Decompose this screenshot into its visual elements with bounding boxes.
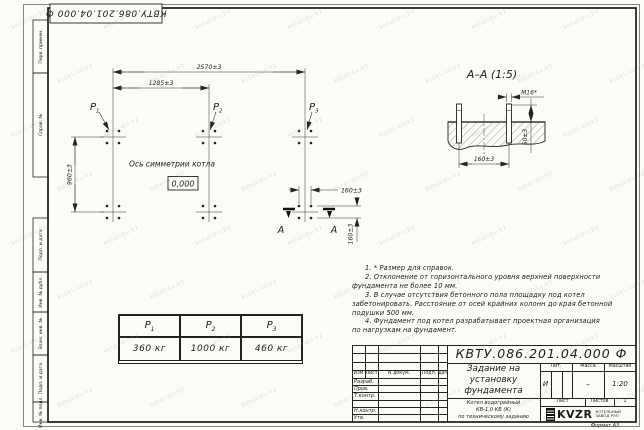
anchor-bolt-dot xyxy=(298,205,301,208)
logo-text: KVZR xyxy=(557,408,592,421)
tb-mass-value: – xyxy=(572,371,604,398)
note-line: фундамента не более 10 мм. xyxy=(352,282,634,291)
title-block-doc-title: Задание на установку фундамента xyxy=(447,364,540,397)
note-line: забетонировать. Расстояние от осей крайн… xyxy=(352,300,634,309)
concrete-pad xyxy=(448,122,545,149)
tb-lit-value: И xyxy=(540,371,551,398)
dim-50-text: 50±3 xyxy=(522,129,529,146)
title-block-code: КВТУ.086.201.04.000 Ф xyxy=(447,345,636,363)
section-view: А–А (1:5) М16* 50±3 xyxy=(448,68,545,168)
doc-title-line: фундамента xyxy=(447,386,540,397)
manufacturer-logo: KVZR КОТЕЛЬНЫЙ ЗАВОД РЭП xyxy=(540,406,636,422)
anchor-bolt-dot xyxy=(202,130,205,133)
axis-symmetry-label: Ось симметрии котла xyxy=(129,160,215,169)
load-table-value-p2: 1000 кг xyxy=(180,337,241,361)
load-point-labels: P1 P2 P3 xyxy=(90,102,319,130)
doc-title-line: установку xyxy=(447,375,540,386)
load-table-value-p1: 360 кг xyxy=(119,337,180,361)
drawing-sheet: Перв. примен. Справ. № Подп. и дата Инв.… xyxy=(0,0,644,430)
margin-label-podp-data-2: Подп. и дата xyxy=(38,363,44,394)
title-block-subtitle: Котел водогрейный КВ-1,0 КБ (К) по техни… xyxy=(447,399,540,423)
margin-label-vzam-inv: Взам. инв. № xyxy=(38,318,44,349)
margin-label-inv-podl: Инв. № подл. xyxy=(38,396,44,428)
anchor-bolt-dot xyxy=(202,217,205,220)
logo-caption-line: ЗАВОД РЭП xyxy=(595,414,621,419)
dim-960-text: 960±3 xyxy=(67,164,74,185)
anchor-bolt-dot xyxy=(118,205,121,208)
anchor-bolt-dot xyxy=(310,142,313,145)
load-p3-label: P3 xyxy=(309,102,319,115)
load-p1-sub: 1 xyxy=(96,109,100,115)
anchor-bolt-dot xyxy=(106,205,109,208)
load-table-value-p3: 460 кг xyxy=(241,337,302,361)
anchor-bolt-dot xyxy=(310,217,313,220)
thread-callout-text: М16* xyxy=(521,90,537,97)
center-lines xyxy=(100,125,318,222)
doc-code-stamp-text: КВТУ.086.201.04.000 Ф xyxy=(45,8,166,18)
doc-title-line: Задание на xyxy=(447,364,540,375)
anchor-bolt-dot xyxy=(298,142,301,145)
plan-view: 2570±3 1285±3 960±3 160±3 xyxy=(67,64,362,244)
technical-notes: 1. * Размер для справок. 2. Отклонение о… xyxy=(352,264,634,335)
tb-col-izm: Изм xyxy=(352,370,365,378)
subtitle-line: КВ-1,0 КБ (К) xyxy=(447,407,540,414)
section-arrow-right xyxy=(327,211,332,218)
tb-scale-value: 1:20 xyxy=(604,371,636,398)
tb-col-data: Дата xyxy=(438,370,447,378)
load-table: P1 P2 P3 360 кг 1000 кг 460 кг xyxy=(118,314,303,364)
format-label: Формат А3 xyxy=(560,423,644,429)
boiler-logo-icon xyxy=(546,408,555,421)
tb-row-razrab: Разраб. xyxy=(354,379,378,386)
anchor-bolt-dot xyxy=(202,205,205,208)
anchor-bolt-dot xyxy=(214,142,217,145)
dim-160-horizontal xyxy=(289,186,338,204)
margin-label-podp-data-1: Подп. и дата xyxy=(38,229,44,260)
dim-1285 xyxy=(113,84,209,125)
tb-col-podp: Подп. xyxy=(420,370,438,378)
margin-label-inv-dubl: Инв. № дубл. xyxy=(38,276,44,307)
note-line: подушки 500 мм. xyxy=(352,309,634,318)
tb-row-nkontr: Н.контр. xyxy=(354,408,378,415)
anchor-bolt-dot xyxy=(106,130,109,133)
tb-sheet-label: Лист xyxy=(540,398,585,406)
anchor-bolt-dot xyxy=(214,205,217,208)
tb-col-ndokum: N докум. xyxy=(378,370,420,378)
logo-caption: КОТЕЛЬНЫЙ ЗАВОД РЭП xyxy=(595,410,621,419)
anchor-bolt-dot xyxy=(118,217,121,220)
dim-160-section-text: 160±3 xyxy=(474,156,494,163)
section-cut-marks: А А xyxy=(277,209,338,236)
section-letter-left: А xyxy=(277,225,285,236)
dim-160-horizontal-text: 160±3 xyxy=(341,187,362,194)
margin-label-perv-primen: Перв. примен. xyxy=(38,29,44,64)
tb-scale-header: Масштаб xyxy=(604,363,636,371)
anchor-bolt-dot xyxy=(202,142,205,145)
dim-960 xyxy=(71,137,104,212)
load-p3-sub: 3 xyxy=(315,109,319,115)
load-table-header-p3: P3 xyxy=(241,315,302,337)
tb-row-prov: Пров. xyxy=(354,386,378,393)
anchor-bolt-dot xyxy=(310,205,313,208)
load-p2-sub: 2 xyxy=(219,109,223,115)
dim-160-vertical-text: 160±3 xyxy=(348,223,355,244)
load-p1-label: P1 xyxy=(90,102,100,115)
load-p2-label: P2 xyxy=(213,102,223,115)
tb-sheets-label: Листов xyxy=(585,398,614,406)
tb-row-utv: Утв. xyxy=(354,415,378,422)
anchor-bolt-dot xyxy=(310,130,313,133)
anchor-bolt-dot xyxy=(106,217,109,220)
load-table-header-p1: P1 xyxy=(119,315,180,337)
tb-col-list: Лист xyxy=(365,370,378,378)
margin-labels: Перв. примен. Справ. № Подп. и дата Инв.… xyxy=(38,29,44,428)
anchor-bolt-dot xyxy=(214,217,217,220)
subtitle-line: Котел водогрейный xyxy=(447,400,540,407)
note-line: по нагрузкам на фундамент. xyxy=(352,326,634,335)
note-line: 1. * Размер для справок. xyxy=(352,264,634,273)
elevation-mark: 0,000 xyxy=(168,177,198,191)
section-letter-right: А xyxy=(330,225,338,236)
anchor-bolt-dot xyxy=(118,142,121,145)
dim-2570-text: 2570±3 xyxy=(197,64,222,71)
doc-code-stamp: КВТУ.086.201.04.000 Ф xyxy=(45,4,166,23)
note-line: 4. Фундамент под котел разрабатывает про… xyxy=(352,317,634,326)
section-arrow-left xyxy=(286,211,291,218)
anchor-bolt-dot xyxy=(298,217,301,220)
anchor-bolt-dot xyxy=(298,130,301,133)
load-table-header-p2: P2 xyxy=(180,315,241,337)
tb-mass-header: Масса xyxy=(572,363,604,371)
margin-label-sprav-n: Справ. № xyxy=(38,114,44,137)
anchor-bolt-dot xyxy=(106,142,109,145)
section-view-title: А–А (1:5) xyxy=(466,68,517,81)
note-line: 3. В случае отсутствия бетонного пола пл… xyxy=(352,291,634,300)
anchor-bolt-dot xyxy=(118,130,121,133)
anchor-bolt-dot xyxy=(214,130,217,133)
title-block: КВТУ.086.201.04.000 Ф Изм Лист N докум. … xyxy=(352,345,636,422)
tb-sheets-value: 1 xyxy=(614,398,636,406)
note-line: 2. Отклонение от горизонтального уровня … xyxy=(352,273,634,282)
dim-1285-text: 1285±3 xyxy=(149,80,174,87)
margin-column xyxy=(33,20,48,422)
tb-lit-header: Лит. xyxy=(540,363,572,371)
tb-row-tkontr: Т.контр. xyxy=(354,393,378,400)
elevation-mark-text: 0,000 xyxy=(172,180,195,189)
subtitle-line: по техническому заданию xyxy=(447,414,540,421)
